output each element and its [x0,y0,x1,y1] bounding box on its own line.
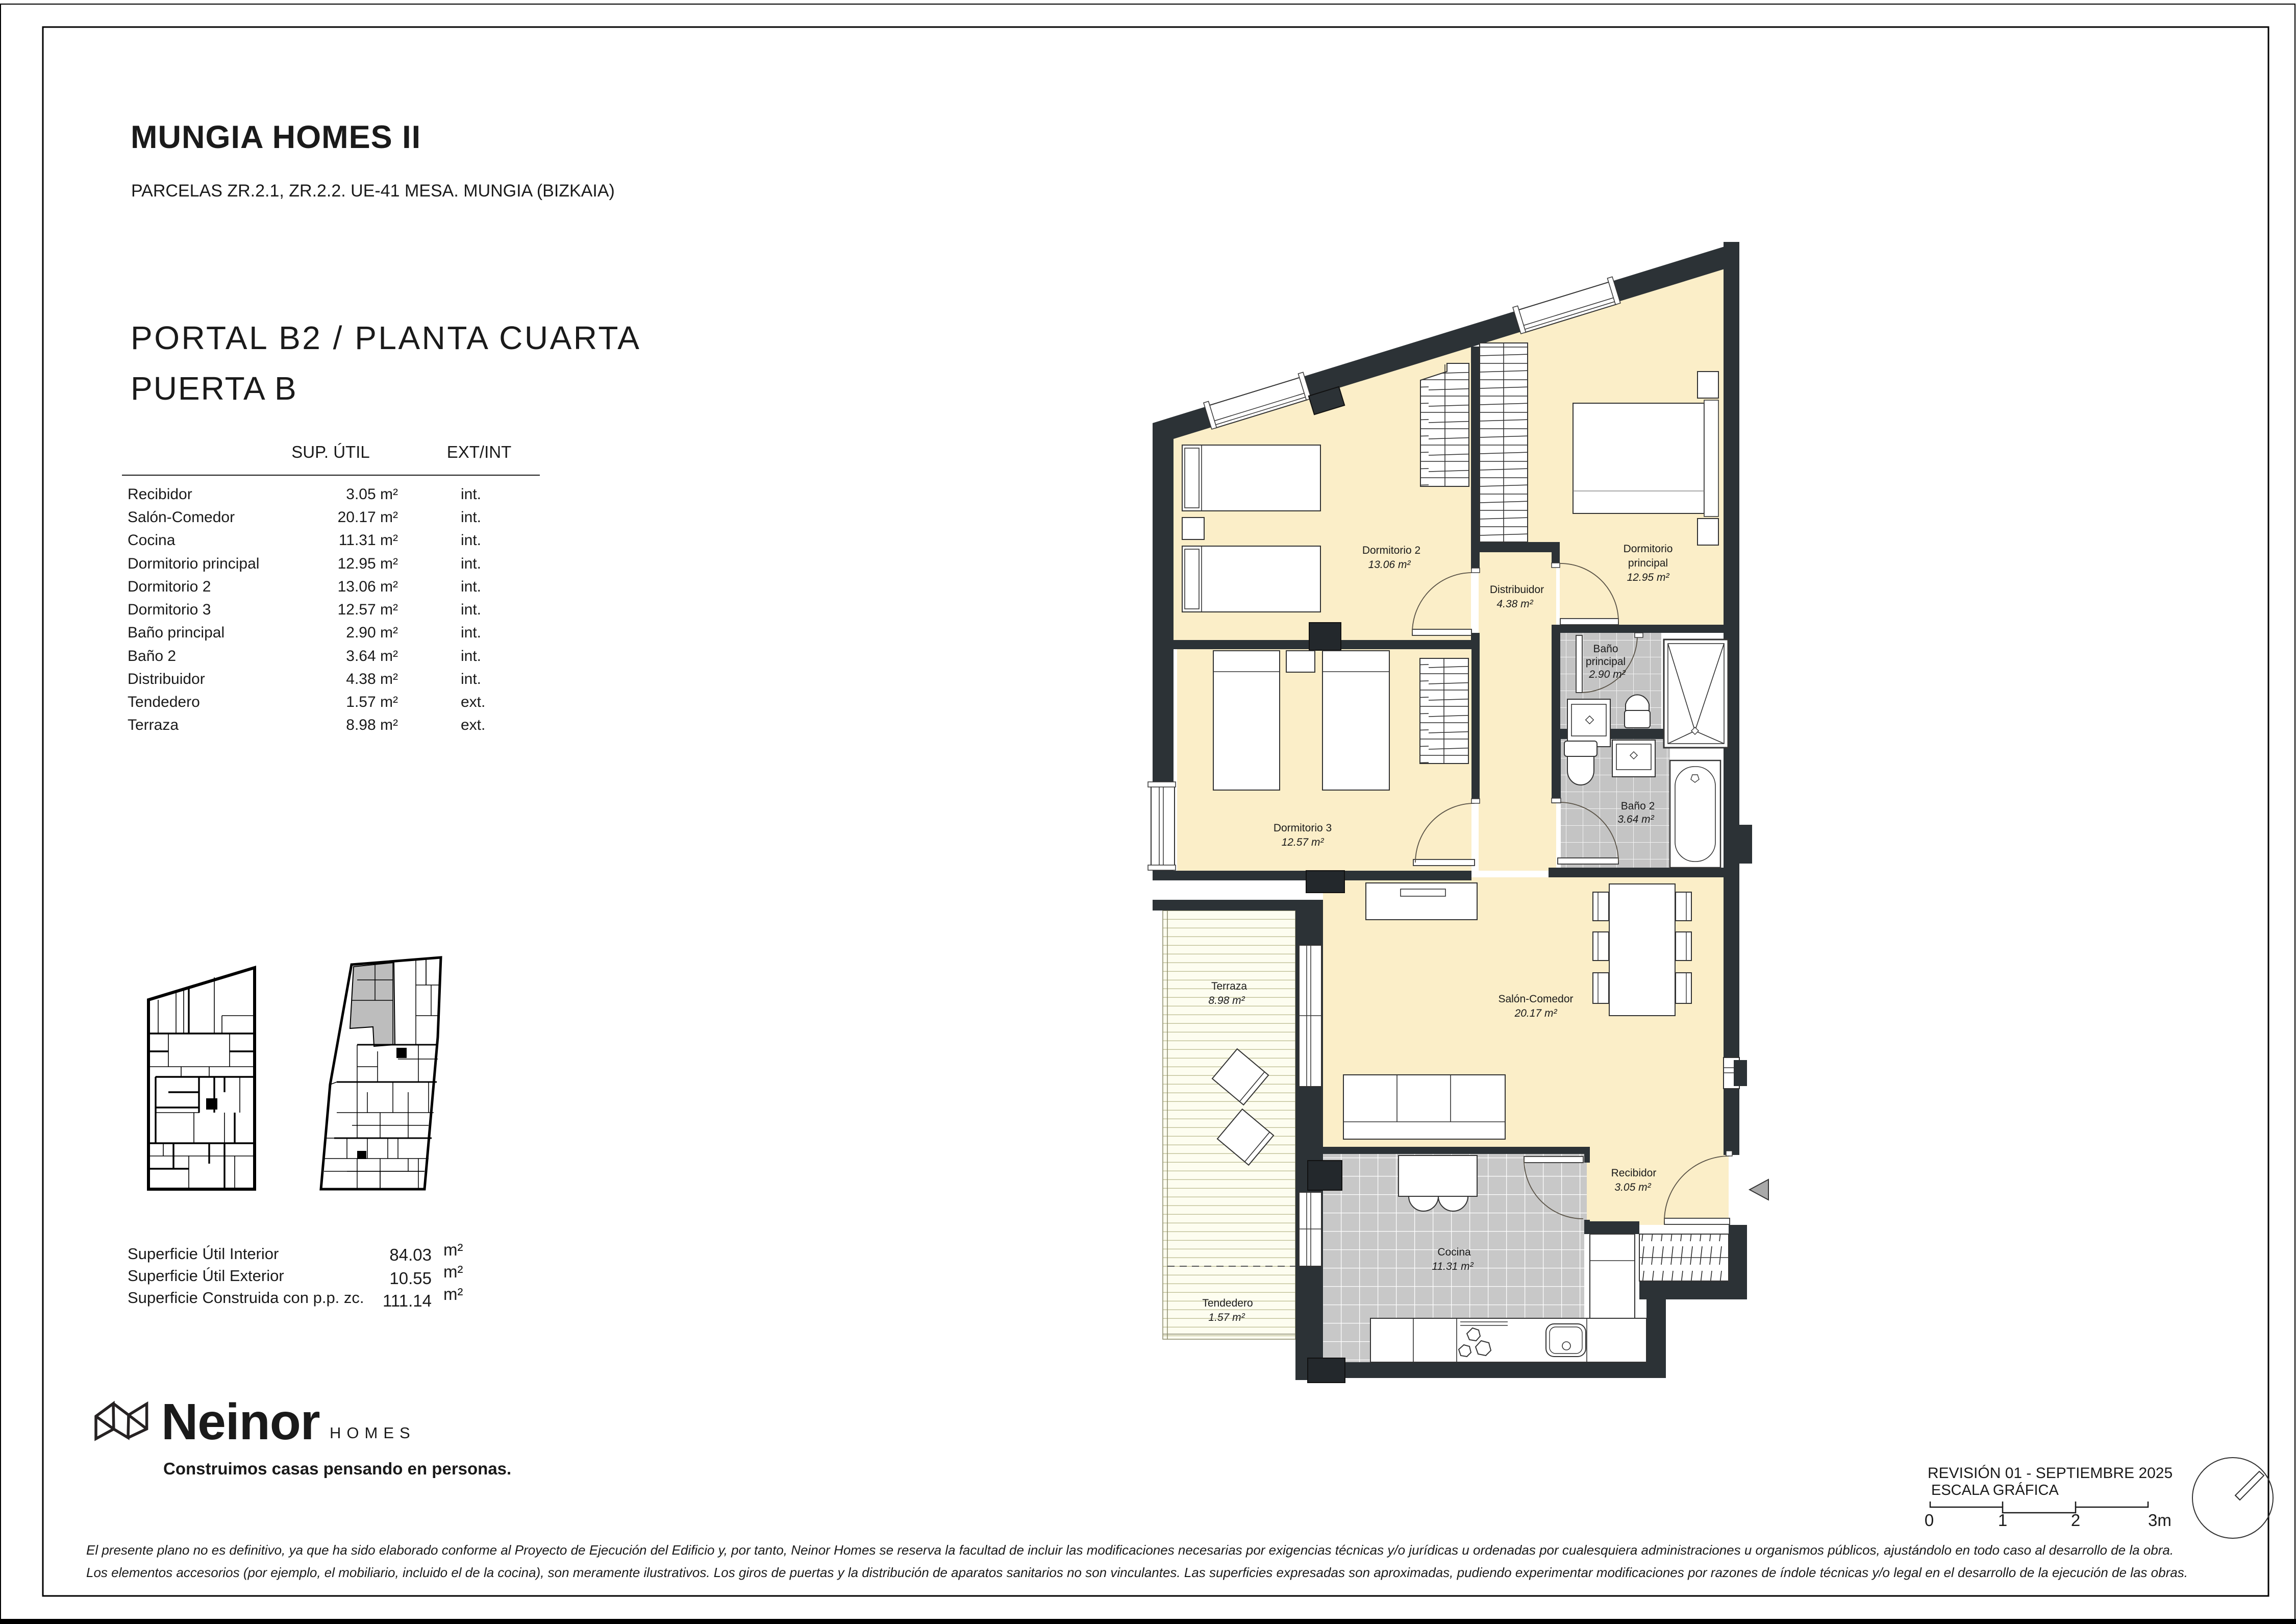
svg-text:1.57 m²: 1.57 m² [1208,1312,1245,1323]
svg-text:principal: principal [1628,557,1668,569]
svg-text:REVISIÓN 01 - SEPTIEMBRE 2025: REVISIÓN 01 - SEPTIEMBRE 2025 [1928,1465,2173,1482]
svg-text:1: 1 [1998,1511,2007,1530]
svg-text:13.06 m²: 13.06 m² [338,578,398,595]
svg-text:12.95 m²: 12.95 m² [1627,572,1670,583]
svg-text:Construimos casas pensando en: Construimos casas pensando en personas. [163,1459,511,1478]
svg-text:8.98 m²: 8.98 m² [1208,995,1245,1006]
svg-text:PUERTA B: PUERTA B [131,370,297,407]
svg-text:2.90 m²: 2.90 m² [346,624,398,641]
svg-text:Cocina: Cocina [128,532,176,549]
svg-text:4.38 m²: 4.38 m² [346,671,398,687]
svg-text:Dormitorio: Dormitorio [1624,543,1673,555]
svg-text:Superficie Útil Exterior: Superficie Útil Exterior [128,1267,284,1285]
svg-text:PARCELAS ZR.2.1, ZR.2.2. UE-41: PARCELAS ZR.2.1, ZR.2.2. UE-41 MESA. MUN… [131,181,615,201]
svg-text:Tendedero: Tendedero [128,694,200,710]
svg-text:Recibidor: Recibidor [1611,1167,1657,1179]
svg-text:3.64 m²: 3.64 m² [346,648,398,665]
svg-text:Superficie Útil Interior: Superficie Útil Interior [128,1245,279,1263]
svg-text:3.64 m²: 3.64 m² [1617,814,1654,825]
svg-text:m²: m² [443,1285,463,1303]
svg-text:Terraza: Terraza [128,717,179,733]
svg-text:20.17 m²: 20.17 m² [1514,1007,1558,1019]
svg-text:11.31 m²: 11.31 m² [1432,1261,1474,1272]
svg-text:int.: int. [461,555,481,572]
svg-text:12.57 m²: 12.57 m² [1282,836,1325,848]
svg-text:12.95 m²: 12.95 m² [338,555,398,572]
svg-text:Dormitorio principal: Dormitorio principal [128,555,259,572]
svg-text:Dormitorio 3: Dormitorio 3 [128,601,211,618]
svg-text:SUP. ÚTIL: SUP. ÚTIL [291,442,369,461]
svg-text:84.03: 84.03 [389,1245,432,1264]
svg-text:Recibidor: Recibidor [128,486,192,503]
svg-text:int.: int. [461,648,481,665]
svg-text:3.05 m²: 3.05 m² [346,486,398,503]
svg-text:int.: int. [461,601,481,618]
svg-text:int.: int. [461,509,481,526]
svg-text:Neinor: Neinor [161,1393,320,1450]
svg-text:EXT/INT: EXT/INT [447,442,512,461]
svg-text:Baño 2: Baño 2 [1621,800,1655,812]
svg-text:Salón-Comedor: Salón-Comedor [128,509,235,526]
svg-text:3m: 3m [2148,1511,2172,1530]
svg-text:m²: m² [443,1240,463,1259]
svg-text:ext.: ext. [461,717,485,733]
svg-text:3.05 m²: 3.05 m² [1614,1182,1651,1193]
svg-text:Superficie Construida con p.p.: Superficie Construida con p.p. zc. [128,1289,364,1307]
svg-text:PORTAL B2 / PLANTA CUARTA: PORTAL B2 / PLANTA CUARTA [131,319,641,356]
svg-text:Distribuidor: Distribuidor [128,671,205,687]
svg-text:Dormitorio 2: Dormitorio 2 [128,578,211,595]
svg-text:Baño 2: Baño 2 [128,648,176,665]
svg-text:2.90 m²: 2.90 m² [1588,669,1626,680]
svg-text:Terraza: Terraza [1211,980,1247,992]
svg-text:8.98 m²: 8.98 m² [346,717,398,733]
svg-text:Dormitorio 2: Dormitorio 2 [1362,545,1420,556]
svg-text:m²: m² [443,1262,463,1281]
svg-text:4.38 m²: 4.38 m² [1496,598,1533,610]
svg-text:ESCALA GRÁFICA: ESCALA GRÁFICA [1931,1482,2059,1498]
svg-text:Dormitorio 3: Dormitorio 3 [1274,822,1332,834]
svg-text:ext.: ext. [461,694,485,710]
svg-text:Distribuidor: Distribuidor [1490,584,1544,596]
svg-text:20.17 m²: 20.17 m² [338,509,398,526]
svg-text:10.55: 10.55 [389,1269,432,1288]
svg-text:El presente plano no es defini: El presente plano no es definitivo, ya q… [86,1542,2174,1558]
svg-text:HOMES: HOMES [330,1424,416,1442]
svg-text:2: 2 [2071,1511,2080,1530]
svg-text:1.57 m²: 1.57 m² [346,694,398,710]
svg-text:int.: int. [461,671,481,687]
svg-text:Los elementos accesorios (por: Los elementos accesorios (por ejemplo, e… [86,1565,2188,1580]
svg-text:int.: int. [461,532,481,549]
svg-text:Salón-Comedor: Salón-Comedor [1498,993,1573,1005]
svg-text:Tendedero: Tendedero [1202,1297,1253,1309]
svg-text:int.: int. [461,624,481,641]
svg-text:111.14: 111.14 [383,1291,432,1310]
svg-text:12.57 m²: 12.57 m² [338,601,398,618]
svg-text:Baño: Baño [1593,643,1618,655]
svg-text:MUNGIA HOMES II: MUNGIA HOMES II [131,119,421,155]
svg-text:int.: int. [461,578,481,595]
svg-text:Baño principal: Baño principal [128,624,224,641]
svg-text:int.: int. [461,486,481,503]
svg-text:13.06 m²: 13.06 m² [1368,559,1411,571]
svg-text:11.31 m²: 11.31 m² [339,532,398,549]
svg-text:0: 0 [1925,1511,1934,1530]
svg-text:principal: principal [1586,656,1626,668]
svg-text:Cocina: Cocina [1437,1246,1471,1258]
